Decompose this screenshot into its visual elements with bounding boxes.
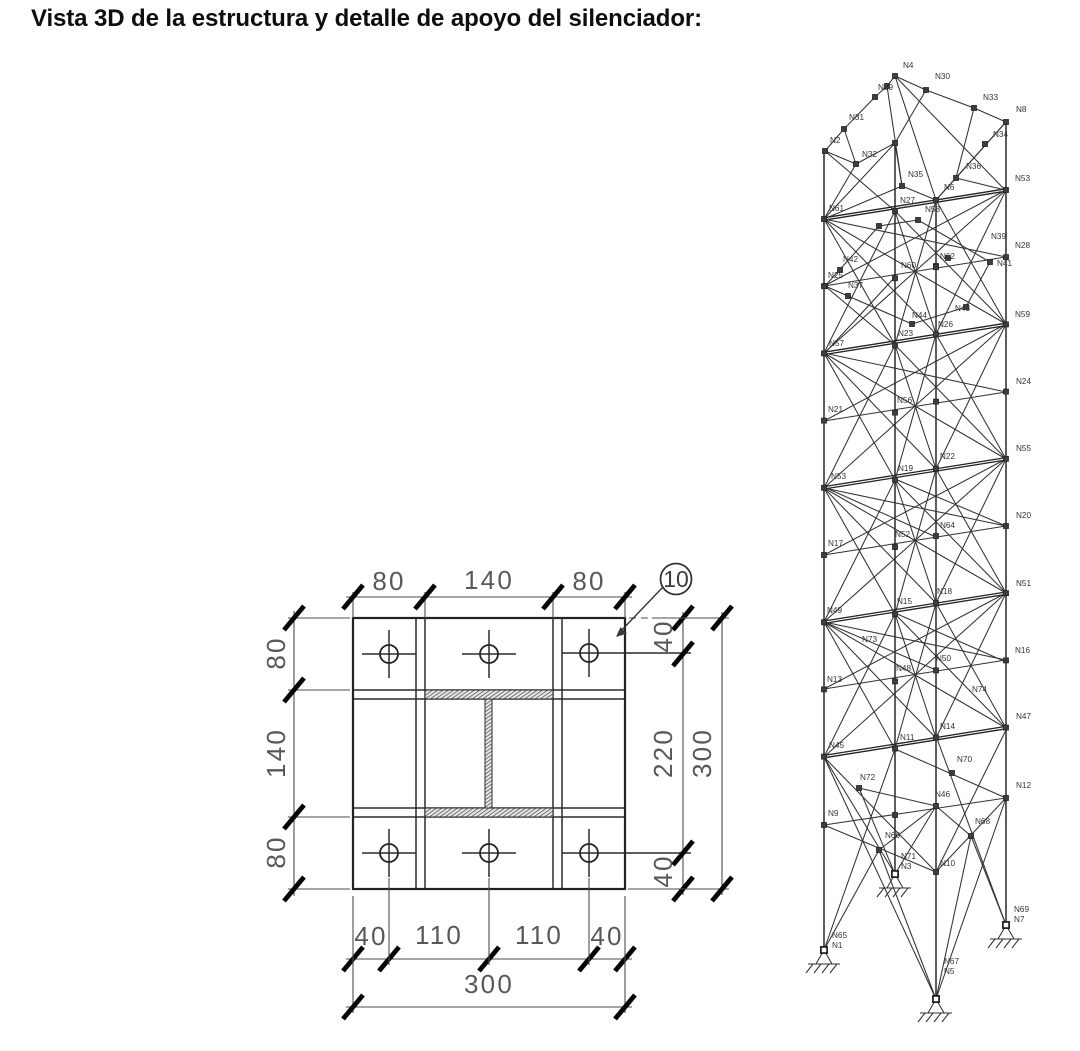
svg-text:N48: N48	[896, 664, 911, 673]
svg-text:80: 80	[261, 636, 291, 669]
svg-text:300: 300	[464, 969, 514, 999]
svg-text:N55: N55	[1016, 444, 1031, 453]
svg-text:N26: N26	[938, 320, 953, 329]
svg-text:N73: N73	[862, 635, 877, 644]
svg-text:80: 80	[372, 566, 405, 596]
svg-text:N53: N53	[831, 472, 846, 481]
svg-text:N52: N52	[895, 530, 910, 539]
svg-text:N39: N39	[991, 232, 1006, 241]
svg-text:N42: N42	[843, 255, 858, 264]
svg-text:N20: N20	[1016, 511, 1031, 520]
svg-text:N74: N74	[972, 685, 987, 694]
svg-text:N56: N56	[897, 396, 912, 405]
svg-text:N57: N57	[829, 339, 844, 348]
svg-text:N19: N19	[898, 464, 913, 473]
svg-text:40: 40	[648, 854, 678, 887]
svg-text:N45: N45	[829, 741, 844, 750]
svg-text:N30: N30	[935, 72, 950, 81]
svg-text:N34: N34	[993, 130, 1008, 139]
svg-text:140: 140	[464, 565, 514, 595]
svg-text:N6: N6	[944, 183, 955, 192]
svg-text:N71: N71	[901, 852, 916, 861]
svg-text:N65: N65	[832, 931, 847, 940]
svg-text:N1: N1	[832, 941, 843, 950]
svg-text:N16: N16	[1015, 646, 1030, 655]
svg-text:N49: N49	[827, 606, 842, 615]
svg-text:N12: N12	[1016, 781, 1031, 790]
svg-text:220: 220	[648, 728, 678, 778]
svg-text:N58: N58	[925, 205, 940, 214]
svg-text:N72: N72	[860, 773, 875, 782]
svg-text:N36: N36	[966, 162, 981, 171]
svg-text:300: 300	[687, 728, 717, 778]
svg-text:N35: N35	[908, 170, 923, 179]
svg-text:N61: N61	[829, 204, 844, 213]
svg-text:N50: N50	[936, 654, 951, 663]
svg-text:N43: N43	[955, 304, 970, 313]
svg-text:10: 10	[663, 566, 689, 592]
svg-text:N15: N15	[897, 597, 912, 606]
svg-text:N33: N33	[983, 93, 998, 102]
svg-text:N41: N41	[997, 259, 1012, 268]
svg-text:N44: N44	[912, 311, 927, 320]
svg-text:N62: N62	[940, 252, 955, 261]
svg-text:110: 110	[515, 920, 563, 950]
svg-text:N11: N11	[900, 733, 915, 742]
svg-text:N67: N67	[944, 957, 959, 966]
svg-text:N23: N23	[898, 329, 913, 338]
svg-text:N3: N3	[901, 862, 912, 871]
svg-text:N10: N10	[940, 859, 955, 868]
svg-text:40: 40	[354, 921, 387, 951]
svg-text:80: 80	[572, 566, 605, 596]
svg-text:N29: N29	[878, 83, 893, 92]
svg-text:N4: N4	[903, 61, 914, 70]
svg-text:N22: N22	[940, 452, 955, 461]
svg-text:N66: N66	[885, 831, 900, 840]
svg-text:N59: N59	[1015, 310, 1030, 319]
svg-text:N5: N5	[944, 967, 955, 976]
svg-text:N13: N13	[827, 675, 842, 684]
svg-text:N51: N51	[1016, 579, 1031, 588]
svg-text:N18: N18	[937, 587, 952, 596]
svg-text:N2: N2	[830, 136, 841, 145]
svg-text:N60: N60	[901, 261, 916, 270]
svg-text:N32: N32	[862, 150, 877, 159]
svg-text:N7: N7	[1014, 915, 1025, 924]
svg-text:N53: N53	[1015, 174, 1030, 183]
svg-text:N46: N46	[935, 790, 950, 799]
svg-text:N69: N69	[1014, 905, 1029, 914]
svg-text:N17: N17	[828, 539, 843, 548]
svg-text:40: 40	[648, 619, 678, 652]
svg-text:N28: N28	[1015, 241, 1030, 250]
svg-text:N27: N27	[900, 196, 915, 205]
svg-text:110: 110	[415, 920, 463, 950]
svg-text:N9: N9	[828, 809, 839, 818]
svg-text:N37: N37	[848, 281, 863, 290]
svg-text:N24: N24	[1016, 377, 1031, 386]
svg-text:N14: N14	[940, 722, 955, 731]
svg-text:N25: N25	[828, 271, 843, 280]
svg-text:N68: N68	[975, 817, 990, 826]
svg-text:N47: N47	[1016, 712, 1031, 721]
svg-text:N70: N70	[957, 755, 972, 764]
svg-text:N31: N31	[849, 113, 864, 122]
svg-text:80: 80	[261, 835, 291, 868]
svg-text:140: 140	[261, 728, 291, 778]
svg-text:N64: N64	[940, 521, 955, 530]
svg-text:N8: N8	[1016, 105, 1027, 114]
svg-text:N21: N21	[828, 405, 843, 414]
svg-text:40: 40	[590, 921, 623, 951]
